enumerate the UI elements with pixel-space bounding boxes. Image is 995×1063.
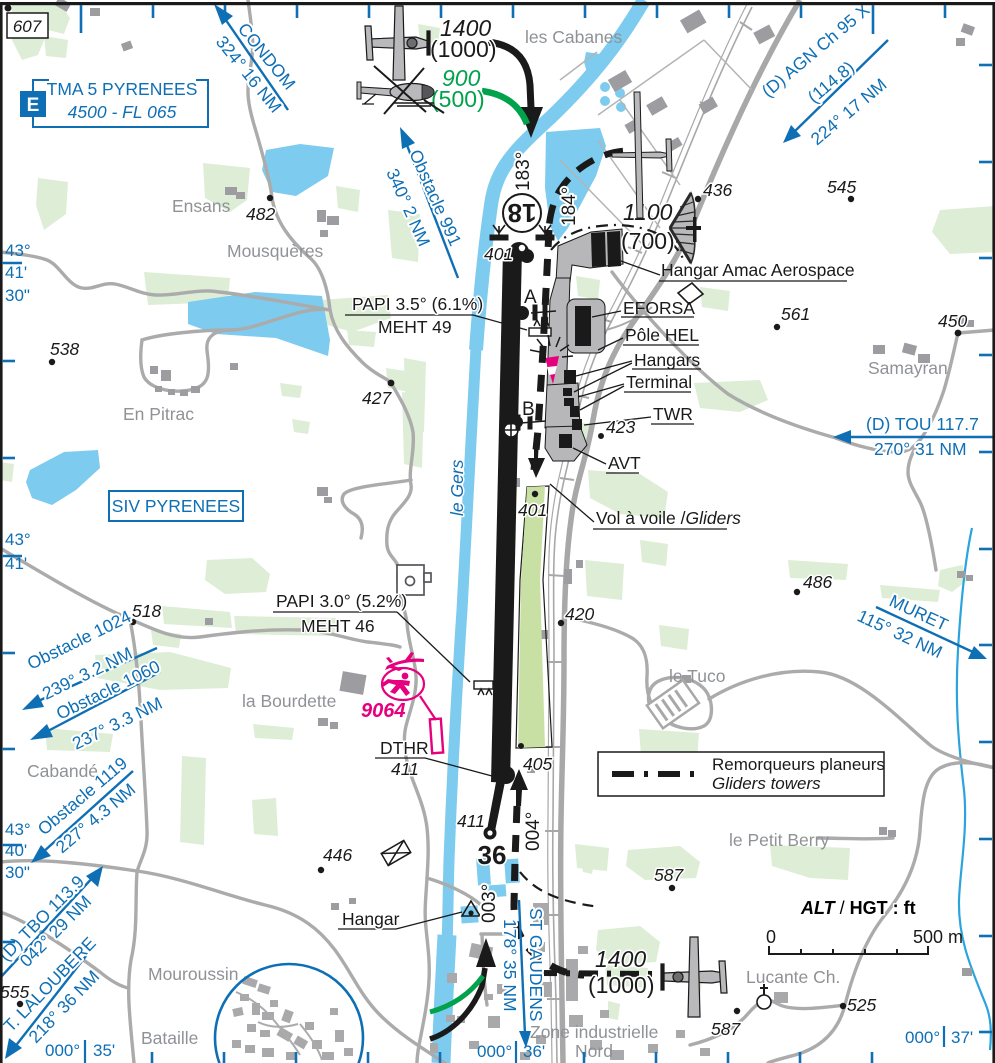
- svg-text:178° 35 NM: 178° 35 NM: [500, 919, 520, 1012]
- svg-text:PAPI 3.5° (6.1%): PAPI 3.5° (6.1%): [352, 294, 483, 314]
- svg-text:AVT: AVT: [608, 453, 641, 473]
- svg-text:43°: 43°: [5, 530, 31, 549]
- svg-text:401: 401: [518, 500, 547, 520]
- svg-text:405: 405: [523, 754, 552, 774]
- svg-text:004°: 004°: [523, 812, 544, 851]
- svg-text:184°: 184°: [559, 187, 580, 226]
- svg-text:Lucante Ch.: Lucante Ch.: [746, 967, 840, 987]
- svg-text:436: 436: [703, 180, 732, 200]
- svg-text:Hangar: Hangar: [342, 909, 400, 929]
- svg-text:545: 545: [827, 177, 856, 197]
- svg-text:A: A: [524, 287, 537, 308]
- svg-text:36': 36': [523, 1042, 545, 1061]
- svg-text:401: 401: [484, 244, 513, 264]
- svg-text:41': 41': [5, 263, 27, 282]
- svg-text:les Cabanes: les Cabanes: [525, 27, 623, 47]
- svg-text:(1000): (1000): [588, 972, 654, 998]
- svg-text:Mousquères: Mousquères: [227, 241, 324, 261]
- svg-text:Ensans: Ensans: [172, 196, 231, 216]
- svg-text:607: 607: [13, 17, 42, 36]
- svg-text:18: 18: [508, 198, 537, 228]
- svg-text:EFORSA: EFORSA: [623, 298, 695, 318]
- svg-text:Samayran: Samayran: [868, 358, 948, 378]
- svg-text:1400: 1400: [595, 946, 646, 972]
- svg-text:4500 - FL 065: 4500 - FL 065: [68, 102, 177, 122]
- svg-text:En Pitrac: En Pitrac: [123, 404, 194, 424]
- svg-text:40': 40': [5, 841, 27, 860]
- svg-text:482: 482: [246, 204, 275, 224]
- svg-text:PAPI 3.0° (5.2%): PAPI 3.0° (5.2%): [276, 591, 407, 611]
- svg-text:Mouroussin: Mouroussin: [148, 964, 238, 984]
- svg-text:420: 420: [565, 604, 594, 624]
- svg-text:423: 423: [606, 417, 635, 437]
- svg-text:le Gers: le Gers: [447, 459, 467, 516]
- svg-text:Zone industrielle: Zone industrielle: [530, 1022, 658, 1042]
- svg-text:E: E: [27, 95, 40, 116]
- svg-text:(D) TOU 117.7: (D) TOU 117.7: [866, 414, 979, 434]
- svg-text:le Petit Berry: le Petit Berry: [729, 830, 829, 850]
- svg-text:le Tuco: le Tuco: [669, 666, 725, 686]
- svg-text:561: 561: [781, 304, 810, 324]
- svg-text:30": 30": [5, 286, 30, 305]
- svg-text:1100: 1100: [623, 199, 673, 225]
- svg-text:000°: 000°: [45, 1041, 80, 1060]
- svg-text:518: 518: [132, 601, 161, 621]
- svg-text:411: 411: [457, 811, 485, 831]
- svg-text:Remorqueurs planeurs: Remorqueurs planeurs: [712, 755, 885, 774]
- svg-text:Terminal: Terminal: [626, 372, 692, 392]
- svg-text:TMA 5 PYRENEES: TMA 5 PYRENEES: [47, 79, 198, 99]
- svg-text:(700): (700): [621, 228, 675, 254]
- svg-text:B: B: [522, 399, 535, 420]
- svg-text:270° 31 NM: 270° 31 NM: [874, 439, 967, 459]
- svg-text:37': 37': [951, 1028, 973, 1047]
- svg-text:Pôle HEL: Pôle HEL: [625, 325, 699, 345]
- svg-text:SIV PYRENEES: SIV PYRENEES: [112, 496, 240, 516]
- svg-text:ALT / HGT : ft: ALT / HGT : ft: [800, 898, 916, 918]
- svg-text:MEHT 49: MEHT 49: [378, 317, 452, 337]
- svg-text:Gliders towers: Gliders towers: [712, 774, 821, 793]
- svg-text:000°: 000°: [905, 1028, 940, 1047]
- svg-text:la Bourdette: la Bourdette: [242, 691, 336, 711]
- svg-text:35': 35': [93, 1041, 115, 1060]
- svg-text:450: 450: [938, 311, 967, 331]
- svg-text:ST GAUDENS: ST GAUDENS: [526, 908, 546, 1021]
- svg-text:43°: 43°: [5, 241, 31, 260]
- svg-text:000°: 000°: [477, 1042, 512, 1061]
- svg-text:43°: 43°: [5, 820, 31, 839]
- svg-text:Hangars: Hangars: [634, 350, 700, 370]
- svg-text:TWR: TWR: [653, 404, 693, 424]
- svg-text:9064: 9064: [361, 700, 406, 722]
- svg-text:0: 0: [766, 927, 776, 947]
- svg-text:003°: 003°: [479, 884, 500, 923]
- svg-text:Nord: Nord: [575, 1041, 613, 1061]
- svg-text:Bataille: Bataille: [141, 1028, 198, 1048]
- svg-text:486: 486: [803, 572, 832, 592]
- svg-text:(1000): (1000): [430, 36, 496, 62]
- svg-text:500 m: 500 m: [913, 927, 963, 947]
- svg-text:DTHR: DTHR: [380, 738, 429, 758]
- svg-text:525: 525: [847, 995, 876, 1015]
- svg-text:MEHT 46: MEHT 46: [301, 616, 375, 636]
- svg-text:411: 411: [391, 759, 419, 779]
- svg-text:36: 36: [478, 840, 507, 870]
- svg-text:183°: 183°: [513, 152, 534, 191]
- svg-text:587: 587: [711, 1019, 741, 1039]
- svg-text:41': 41': [5, 554, 27, 573]
- svg-text:Vol à voile /Gliders: Vol à voile /Gliders: [596, 508, 741, 528]
- svg-text:446: 446: [323, 845, 352, 865]
- svg-text:587: 587: [654, 865, 684, 885]
- svg-text:30": 30": [5, 863, 30, 882]
- svg-text:538: 538: [50, 339, 79, 359]
- svg-text:(500): (500): [431, 86, 485, 112]
- svg-text:427: 427: [362, 388, 392, 408]
